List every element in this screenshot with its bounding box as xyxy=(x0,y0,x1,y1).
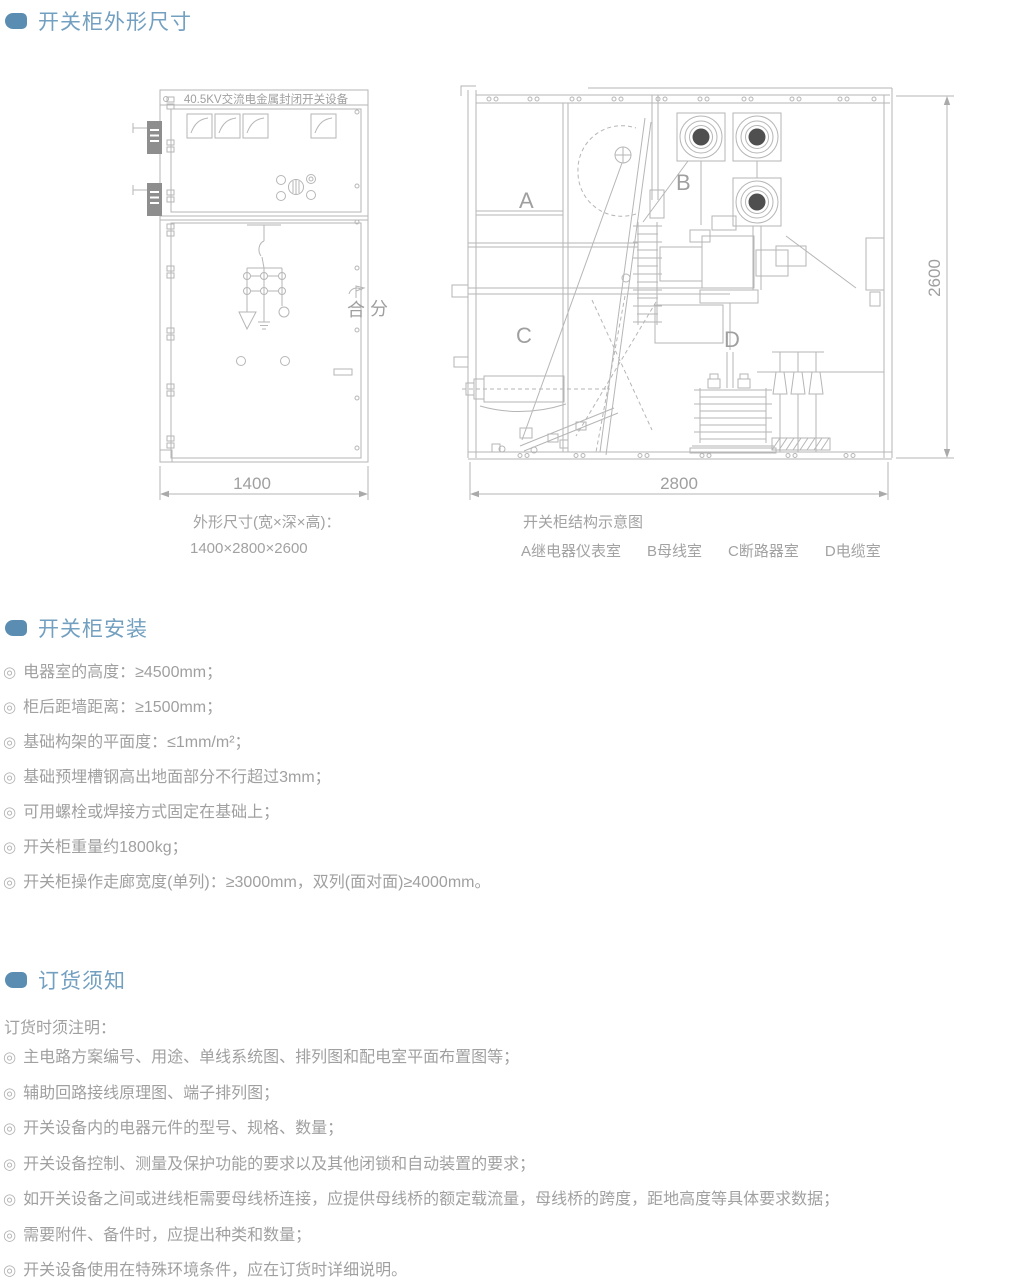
order-item: ◎开关设备使用在特殊环境条件，应在订货时详细说明。 xyxy=(3,1262,839,1280)
install-item-text: 开关柜操作走廊宽度(单列)：≥3000mm，双列(面对面)≥4000mm。 xyxy=(23,874,490,892)
install-item: ◎基础预埋槽钢高出地面部分不行超过3mm； xyxy=(3,769,490,787)
order-item: ◎开关设备控制、测量及保护功能的要求以及其他闭锁和自动装置的要求； xyxy=(3,1156,839,1174)
open-button-symbol xyxy=(281,357,290,366)
cabinet-nameplate: 40.5KV交流电金属封闭开关设备 xyxy=(184,92,349,106)
cable-room-equipment xyxy=(690,303,884,453)
install-item-text: 可用螺栓或焊接方式固定在基础上； xyxy=(23,804,279,822)
item-bullet-icon: ◎ xyxy=(3,1120,16,1138)
ct-bushings xyxy=(677,113,781,226)
install-item-text: 开关柜重量约1800kg； xyxy=(23,839,188,857)
open-label: 分 xyxy=(370,299,388,319)
item-bullet-icon: ◎ xyxy=(3,1227,16,1245)
order-item-text: 开关设备使用在特殊环境条件，应在订货时详细说明。 xyxy=(23,1262,407,1280)
position-flag-icon xyxy=(349,286,364,298)
item-bullet-icon: ◎ xyxy=(3,734,16,752)
install-item: ◎基础构架的平面度：≤1mm/m²； xyxy=(3,734,490,752)
install-item-text: 基础预埋槽钢高出地面部分不行超过3mm； xyxy=(23,769,331,787)
order-item: ◎主电路方案编号、用途、单线系统图、排列图和配电室平面布置图等； xyxy=(3,1049,839,1067)
legend-item: A继电器仪表室 xyxy=(521,540,621,561)
external-handles xyxy=(133,121,162,216)
install-item: ◎可用螺栓或焊接方式固定在基础上； xyxy=(3,804,490,822)
install-list: ◎电器室的高度：≥4500mm； ◎柜后距墙距离：≥1500mm； ◎基础构架的… xyxy=(3,664,490,909)
order-list: ◎主电路方案编号、用途、单线系统图、排列图和配电室平面布置图等； ◎辅助回路接线… xyxy=(3,1049,839,1288)
label-plate xyxy=(334,369,352,375)
breaker-truck xyxy=(462,296,656,453)
catalog-page: 开关柜外形尺寸 xyxy=(0,0,1030,1288)
technical-drawings: 40.5KV交流电金属封闭开关设备 合 分 1400 xyxy=(0,0,1030,575)
order-item-text: 如开关设备之间或进线柜需要母线桥连接，应提供母线桥的额定载流量，母线桥的跨度，距… xyxy=(23,1191,839,1209)
order-item: ◎开关设备内的电器元件的型号、规格、数量； xyxy=(3,1120,839,1138)
order-item: ◎如开关设备之间或进线柜需要母线桥连接，应提供母线桥的额定载流量，母线桥的跨度，… xyxy=(3,1191,839,1209)
top-bolt-holes xyxy=(487,97,876,101)
door-screws xyxy=(355,110,359,450)
install-item: ◎开关柜操作走廊宽度(单列)：≥3000mm，双列(面对面)≥4000mm。 xyxy=(3,874,490,892)
cabinet-front-drawing xyxy=(133,90,368,500)
order-item: ◎辅助回路接线原理图、端子排列图； xyxy=(3,1085,839,1103)
compartment-b-label: B xyxy=(676,170,691,195)
outline-dims-value: 1400×2800×2600 xyxy=(190,540,308,557)
item-bullet-icon: ◎ xyxy=(3,839,16,857)
order-item-text: 开关设备内的电器元件的型号、规格、数量； xyxy=(23,1120,343,1138)
compartment-legend: A继电器仪表室 B母线室 C断路器室 D电缆室 xyxy=(521,540,881,561)
compartment-a-label: A xyxy=(519,188,534,213)
close-label: 合 xyxy=(347,300,365,320)
item-bullet-icon: ◎ xyxy=(3,699,16,717)
item-bullet-icon: ◎ xyxy=(3,1049,16,1067)
install-item-text: 柜后距墙距离：≥1500mm； xyxy=(23,699,222,717)
item-bullet-icon: ◎ xyxy=(3,1156,16,1174)
item-bullet-icon: ◎ xyxy=(3,664,16,682)
item-bullet-icon: ◎ xyxy=(3,804,16,822)
panel-indicators xyxy=(277,175,316,201)
order-item-text: 需要附件、备件时，应提出种类和数量； xyxy=(23,1227,311,1245)
order-item-text: 辅助回路接线原理图、端子排列图； xyxy=(23,1085,279,1103)
legend-item: D电缆室 xyxy=(825,540,881,561)
post-insulator xyxy=(633,222,662,325)
order-item-text: 主电路方案编号、用途、单线系统图、排列图和配电室平面布置图等； xyxy=(23,1049,519,1067)
section-heading-install: 开关柜安装 xyxy=(5,613,148,643)
section-title: 订货须知 xyxy=(38,965,126,995)
structure-caption: 开关柜结构示意图 xyxy=(523,511,643,532)
close-button-symbol xyxy=(237,357,246,366)
cabinet-section-drawing xyxy=(452,86,954,500)
order-item: ◎需要附件、备件时，应提出种类和数量； xyxy=(3,1227,839,1245)
order-intro: 订货时须注明： xyxy=(4,1014,116,1038)
order-item-text: 开关设备控制、测量及保护功能的要求以及其他闭锁和自动装置的要求； xyxy=(23,1156,535,1174)
item-bullet-icon: ◎ xyxy=(3,1262,16,1280)
mimic-diagram xyxy=(239,225,289,329)
item-bullet-icon: ◎ xyxy=(3,1085,16,1103)
operating-lever xyxy=(522,118,651,455)
outline-dims-caption: 外形尺寸(宽×深×高)： xyxy=(193,511,341,532)
section-bullet-icon xyxy=(5,972,27,988)
compartment-c-label: C xyxy=(516,323,532,348)
item-bullet-icon: ◎ xyxy=(3,1191,16,1209)
install-item: ◎电器室的高度：≥4500mm； xyxy=(3,664,490,682)
width-dim-value: 1400 xyxy=(233,474,271,493)
height-dim-value: 2600 xyxy=(925,259,944,297)
base-bolt-holes xyxy=(518,454,855,458)
install-item: ◎柜后距墙距离：≥1500mm； xyxy=(3,699,490,717)
section-bullet-icon xyxy=(5,620,27,636)
panel-meters xyxy=(187,114,336,138)
install-item-text: 基础构架的平面度：≤1mm/m²； xyxy=(23,734,250,752)
item-bullet-icon: ◎ xyxy=(3,769,16,787)
legend-item: C断路器室 xyxy=(728,540,799,561)
legend-item: B母线室 xyxy=(647,540,702,561)
section-title: 开关柜安装 xyxy=(38,613,148,643)
section-heading-order: 订货须知 xyxy=(5,965,126,995)
depth-dim-value: 2800 xyxy=(660,474,698,493)
install-item: ◎开关柜重量约1800kg； xyxy=(3,839,490,857)
compartment-d-label: D xyxy=(724,327,740,352)
item-bullet-icon: ◎ xyxy=(3,874,16,892)
install-item-text: 电器室的高度：≥4500mm； xyxy=(23,664,222,682)
